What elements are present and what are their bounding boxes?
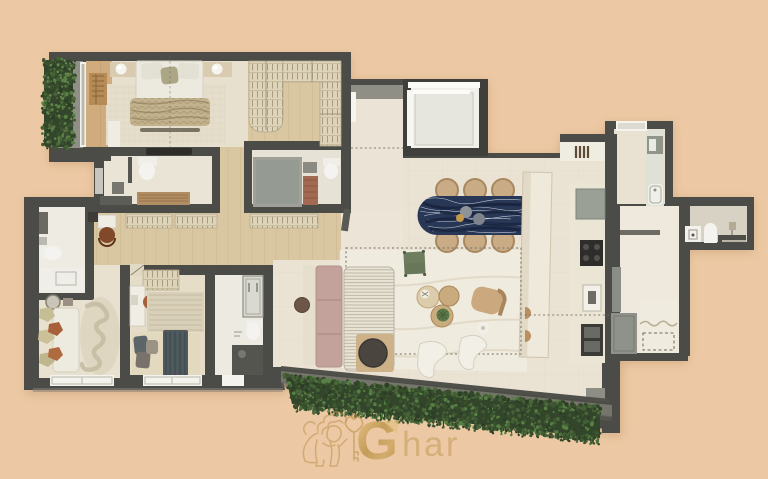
svg-text:G: G <box>356 411 398 471</box>
svg-text:har: har <box>402 425 460 464</box>
